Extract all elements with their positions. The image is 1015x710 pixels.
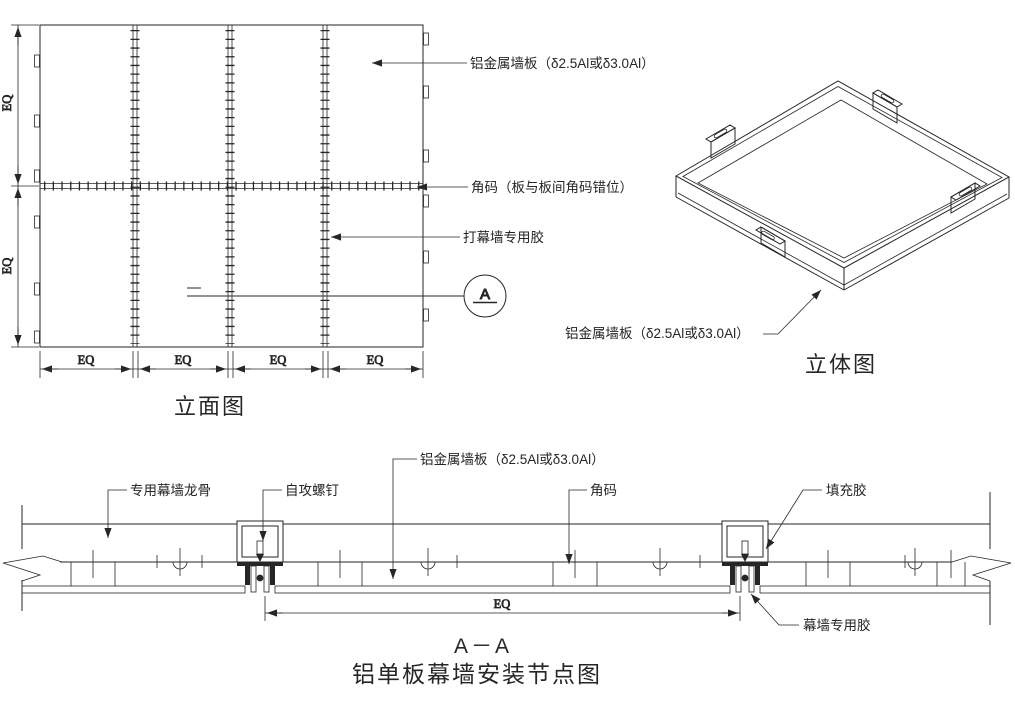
- panel-joints: [40, 25, 423, 347]
- panel-joint: [722, 521, 768, 592]
- leader-screw: [263, 490, 282, 541]
- angle-brackets: [71, 550, 965, 586]
- elevation-view: EQ EQ EQ EQ EQ EQ 铝金属墙板（δ2.5Al或δ3.0Al）: [0, 25, 655, 419]
- mounting-clip: [951, 183, 980, 213]
- break-symbol-right: [952, 556, 1011, 581]
- eq-label: EQ: [494, 597, 511, 611]
- leader-glue: [751, 594, 799, 625]
- label-panel: 铝金属墙板（δ2.5Al或δ3.0Al）: [420, 452, 605, 467]
- section-view: EQ 专用幕墙龙骨 自攻螺钉 铝金属墙板（δ2.5Al或δ3.0Al） 角码 填…: [3, 452, 1011, 687]
- section-mark-a: A: [187, 275, 506, 317]
- label-keel: 专用幕墙龙骨: [130, 483, 211, 498]
- mounting-clip: [873, 90, 902, 123]
- technical-drawing: EQ EQ EQ EQ EQ EQ 铝金属墙板（δ2.5Al或δ3.0Al）: [0, 0, 1015, 710]
- section-leaders: [108, 459, 822, 625]
- elevation-leaders: [331, 63, 468, 237]
- label-panel: 铝金属墙板（δ2.5Al或δ3.0Al）: [470, 56, 655, 71]
- section-mark-letter: A: [480, 286, 490, 303]
- leader-panel: [393, 459, 417, 579]
- eq-label: EQ: [175, 353, 192, 367]
- leader-corner: [569, 490, 587, 564]
- label-corner: 角码（板与板间角码错位）: [471, 180, 633, 195]
- leader-filler: [766, 490, 822, 549]
- leader-iso-panel: [763, 290, 821, 334]
- leader-keel: [108, 490, 127, 538]
- break-symbol-left: [3, 556, 62, 581]
- eq-label: EQ: [367, 353, 384, 367]
- eq-label: EQ: [270, 353, 287, 367]
- iso-view: 铝金属墙板（δ2.5Al或δ3.0Al） 立体图: [565, 81, 1009, 377]
- mounting-clip: [706, 125, 735, 158]
- label-glue: 幕墙专用胶: [803, 617, 871, 633]
- label-screw: 自攻螺钉: [285, 483, 339, 498]
- eq-dimension-section: EQ: [265, 596, 740, 621]
- label-filler: 填充胶: [826, 482, 867, 498]
- panel-tray: [676, 81, 1009, 290]
- section-title: A－A: [454, 635, 512, 658]
- label-iso-panel: 铝金属墙板（δ2.5Al或δ3.0Al）: [565, 326, 750, 341]
- mounting-clip: [756, 227, 785, 257]
- elevation-caption: 立面图: [174, 394, 246, 419]
- panel-joint: [237, 521, 283, 592]
- label-corner: 角码: [590, 483, 617, 498]
- label-glue: 打幕墙专用胶: [463, 229, 544, 245]
- eq-label: EQ: [78, 353, 95, 367]
- eq-dimension-bottom: EQ EQ EQ EQ: [40, 351, 423, 378]
- iso-caption: 立体图: [805, 352, 877, 377]
- drawing-canvas: EQ EQ EQ EQ EQ EQ 铝金属墙板（δ2.5Al或δ3.0Al）: [0, 0, 1015, 710]
- eq-dimension-left: EQ EQ: [0, 25, 39, 347]
- eq-label: EQ: [0, 95, 14, 112]
- drawing-title: 铝单板幕墙安装节点图: [352, 661, 602, 687]
- aluminum-panel: [22, 586, 990, 593]
- eq-label: EQ: [0, 258, 14, 275]
